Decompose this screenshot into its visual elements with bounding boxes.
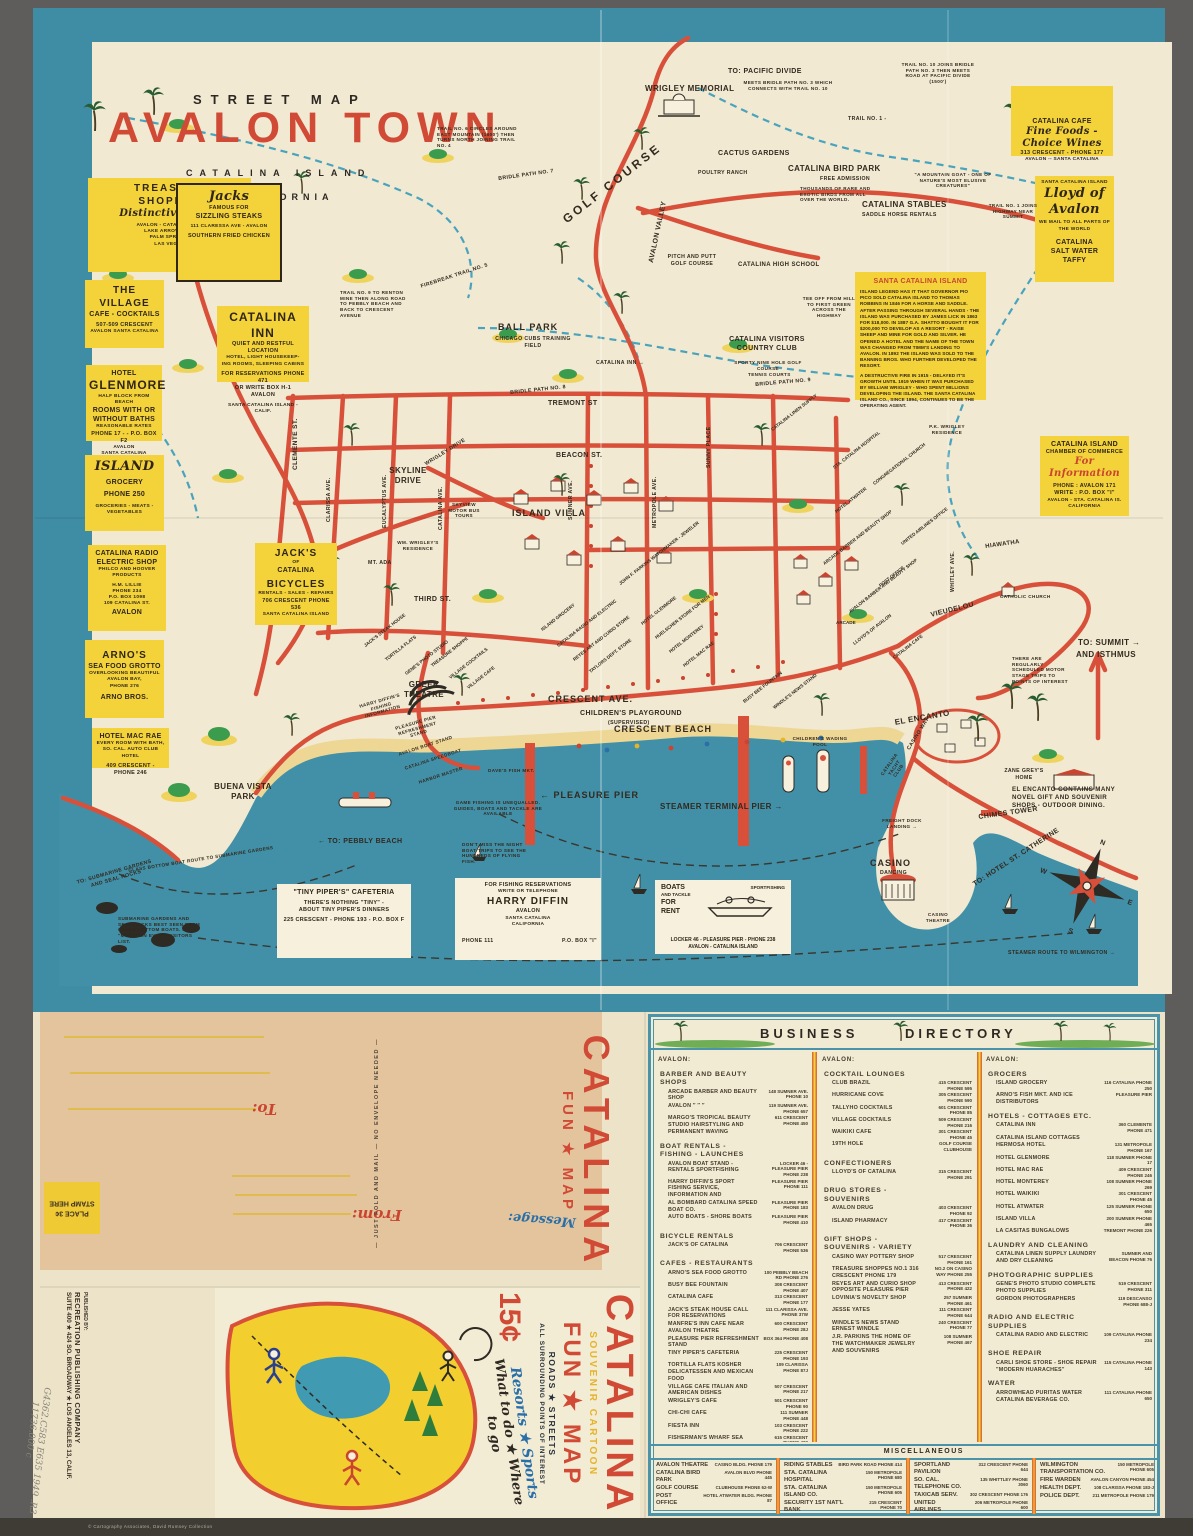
directory-row: LAUNDRY AND CLEANING: [988, 1242, 1152, 1250]
misc-entry-name: UNITED AIRLINES: [914, 1500, 964, 1514]
directory-entry-name: HOTEL WAIKIKI: [996, 1191, 1039, 1198]
misc-row: SECURITY 1ST NAT'L BANK 215 CRESCENT PHO…: [784, 1500, 902, 1514]
directory-entry-name: ISLAND VILLA: [996, 1216, 1036, 1223]
cover-price-row: 15¢ Resorts ★ Sports What to do ★ Where …: [486, 1292, 532, 1516]
directory-entry-name: JACK'S OF CATALINA: [668, 1242, 728, 1249]
ad-salt-water-taffy: SANTA CATALINA ISLANDLloyd of AvalonWE M…: [1035, 176, 1114, 282]
directory-entry-name: GROCERS: [988, 1071, 1027, 1079]
directory-entry-name: CHI-CHI CAFE: [668, 1410, 707, 1417]
directory-entry-name: JACK'S STEAK HOUSE CALL FOR RESERVATIONS: [668, 1307, 759, 1321]
directory-row: WAIKIKI CAFE 301 CRESCENT PHONE 45: [832, 1129, 972, 1140]
misc-entry-name: STA. CATALINA ISLAND CO.: [784, 1485, 848, 1499]
boats-title1b: AND TACKLE: [661, 892, 691, 898]
directory-entry-name: MARGO'S TROPICAL BEAUTY STUDIO HAIRSTYLI…: [668, 1115, 759, 1135]
directory-entry-name: ARNO'S FISH MKT. AND ICE DISTRIBUTORS: [996, 1092, 1098, 1106]
label-stage-trips-note: THERE ARE REGULARLY SCHEDULED MOTOR STAG…: [1012, 656, 1068, 685]
misc-row: HEALTH DEPT. 108 CLARISSA PHONE 183-J: [1040, 1485, 1154, 1492]
ad-hotel-glenmore: HOTELGLENMOREHALF BLOCK FROM BEACHROOMS …: [86, 365, 162, 441]
fold-crease: [644, 1012, 646, 1520]
ad-tiny-pipers: "TINY PIPER'S" CAFETERIATHERE'S NOTHING …: [277, 884, 411, 958]
fold-crease: [35, 517, 1163, 519]
directory-row: CARLI SHOE STORE - SHOE REPAIR "MODERN H…: [996, 1360, 1152, 1374]
misc-divider: [906, 1458, 910, 1514]
label-metropole-ave: METROPOLE AVE.: [652, 477, 659, 528]
directory-entry-address: 601 CRESCENT PHONE 85: [927, 1105, 972, 1116]
directory-entry-address: 111 CRESCENT PHONE 644: [927, 1307, 972, 1318]
directory-entry-name: VILLAGE CAFE ITALIAN AND AMERICAN DISHES: [668, 1384, 759, 1398]
fold-and-mail-note: — JUST FOLD AND MAIL — NO ENVELOPE NEEDE…: [374, 1038, 380, 1248]
directory-row: PLEASURE PIER REFRESHMENT STAND BOX 364 …: [668, 1336, 808, 1350]
directory-entry-address: 111 SUMNER PHONE 448: [763, 1410, 808, 1421]
misc-entry-address: 108 CLARISSA PHONE 183-J: [1094, 1485, 1154, 1492]
directory-row: JACK'S OF CATALINA 706 CRESCENT PHONE 53…: [668, 1242, 808, 1253]
ad-jacks-bicycles: JACK'SOFCATALINABICYCLESRENTALS - SALES …: [255, 543, 337, 625]
directory-row: GENE'S PHOTO STUDIO COMPLETE PHOTO SUPPL…: [996, 1281, 1152, 1295]
directory-row: TORTILLA FLATS KOSHER DELICATESSEN AND M…: [668, 1362, 808, 1382]
misc-entry-name: WILMINGTON TRANSPORTATION CO.: [1040, 1462, 1110, 1476]
directory-entry-name: TINY PIPER'S CAFETERIA: [668, 1350, 739, 1357]
label-pitch-putt: PITCH AND PUTT GOLF COURSE: [662, 254, 722, 267]
fold-crease: [600, 10, 602, 1010]
directory-row: PHOTOGRAPHIC SUPPLIES: [988, 1272, 1152, 1280]
directory-entry-address: TREMONT PHONE 226: [1102, 1228, 1152, 1234]
label-to-isthmus: AND ISTHMUS: [1076, 650, 1136, 660]
ad-catalina-radio: CATALINA RADIOELECTRIC SHOPPHILCO AND HO…: [88, 545, 166, 631]
directory-entry-name: HARRY DIFFIN'S SPORT FISHING SERVICE, IN…: [668, 1179, 759, 1199]
directory-row: AUTO BOATS - SHORE BOATS PLEASURE PIER P…: [668, 1214, 808, 1225]
rowboat-icon: [707, 894, 773, 918]
directory-entry-name: FISHERMAN'S WHARF SEA FOOD: [668, 1435, 759, 1442]
directory-entry-address: 119 DESCANSO PHONE 688-J: [1102, 1296, 1152, 1307]
label-pacific-divide: TO: PACIFIC DIVIDE: [728, 68, 802, 77]
misc-row: FIRE WARDEN AVALON CANYON PHONE 454: [1040, 1477, 1154, 1484]
directory-row: ARNO'S FISH MKT. AND ICE DISTRIBUTORS PL…: [996, 1092, 1152, 1106]
directory-entry-name: CATALINA LINEN SUPPLY LAUNDRY AND DRY CL…: [996, 1251, 1098, 1265]
label-night-boat-note: DON'T MISS THE NIGHT BOAT TRIPS TO SEE T…: [462, 842, 534, 865]
directory-row: CATALINA ISLAND COTTAGES: [996, 1135, 1152, 1142]
directory-entry-address: 519 CRESCENT PHONE 311: [1102, 1281, 1152, 1292]
cover-roads: ROADS ★ STREETS: [545, 1292, 558, 1516]
label-beacon-st: BEACON ST.: [556, 452, 602, 461]
address-line: [233, 1213, 351, 1215]
directory-entry-address: 501 CRESCENT PHONE 90: [763, 1398, 808, 1409]
directory-entry-name: AUTO BOATS - SHORE BOATS: [668, 1214, 752, 1221]
directory-entry-name: WAIKIKI CAFE: [832, 1129, 872, 1136]
boats-title2: FOR: [661, 899, 676, 907]
fold-crease: [40, 1286, 640, 1288]
directory-entry-address: 315 CRESCENT PHONE 291: [927, 1169, 972, 1180]
directory-entry-address: 360 CLEMENTE PHONE 471: [1102, 1122, 1152, 1133]
label-daves-fish-mkt: DAVE'S FISH MKT.: [488, 768, 535, 774]
directory-entry-address: 600 CRESCENT PHONE 28J: [763, 1321, 808, 1332]
label-wrigley-residence: WM. WRIGLEY'S RESIDENCE: [392, 540, 444, 551]
directory-row: COCKTAIL LOUNGES: [824, 1071, 972, 1079]
directory-row: HOTEL GLENMORE 118 SUMNER PHONE 17: [996, 1155, 1152, 1166]
label-trail9-note: TRAIL NO. 9 TO RENTON MINE THEN ALONG RO…: [340, 290, 410, 319]
directory-entry-name: SHOE REPAIR: [988, 1350, 1042, 1358]
directory-entry-address: 200 SUMNER PHONE 465: [1102, 1216, 1152, 1227]
directory-entry-name: MANFRE'S INN CAFE NEAR AVALON THEATRE: [668, 1321, 759, 1335]
label-casino-dancing: DANCING: [880, 870, 907, 877]
compass-n: N: [1099, 839, 1106, 847]
misc-entry-address: 150 METROPOLE PHONE 680: [849, 1470, 902, 1484]
directory-entry-name: VILLAGE COCKTAILS: [832, 1117, 891, 1124]
misc-entry-address: 312 CRESCENT PHONE 644: [975, 1462, 1028, 1476]
collection-credit: © Cartography Associates, David Rumsey C…: [88, 1524, 212, 1529]
directory-row: J.R. PARKINS THE HOME OF THE WATCHMAKER …: [832, 1334, 972, 1354]
label-tee-note: TEE OFF FROM HILL TO FIRST GREEN ACROSS …: [800, 296, 858, 319]
directory-entry-name: ARNO'S SEA FOOD GROTTO: [668, 1270, 747, 1277]
directory-entry-address: LOCKER 46 - PLEASURE PIER PHONE 238: [763, 1161, 808, 1178]
directory-divider: [812, 1052, 817, 1442]
directory-row: BARBER AND BEAUTY SHOPS: [660, 1071, 808, 1088]
directory-entry-name: DRUG STORES - SOUVENIRS: [824, 1187, 921, 1204]
directory-entry-name: LA CASITAS BUNGALOWS: [996, 1228, 1069, 1235]
boats-bottom2: AVALON - CATALINA ISLAND: [655, 944, 791, 950]
label-childrens-playground: CHILDREN'S PLAYGROUND: [580, 710, 682, 719]
directory-entry-name: TREASURE SHOPPES NO.1 316 CRESCENT PHONE…: [832, 1266, 923, 1280]
directory-row: CONFECTIONERS: [824, 1160, 972, 1168]
directory-column-1: AVALON: BARBER AND BEAUTY SHOPS ARCADE B…: [658, 1054, 808, 1442]
misc-entry-address: 302 CRESCENT PHONE 176: [970, 1492, 1028, 1499]
directory-entry-address: 413 CRESCENT PHONE 422: [927, 1281, 972, 1292]
directory-entry-name: TORTILLA FLATS KOSHER DELICATESSEN AND M…: [668, 1362, 759, 1382]
directory-row: BOAT RENTALS - FISHING - LAUNCHES: [660, 1143, 808, 1160]
directory-row: JACK'S STEAK HOUSE CALL FOR RESERVATIONS…: [668, 1307, 808, 1321]
directory-row: GROCERS: [988, 1071, 1152, 1079]
label-bird-park-sub: FREE ADMISSION: [820, 176, 870, 183]
directory-entry-address: 109 CATALINA PHONE 234: [1102, 1332, 1152, 1343]
directory-entry-address: 100 PEBBLY BEACH RD PHONE 276: [763, 1270, 808, 1281]
directory-row: VILLAGE COCKTAILS 509 CRESCENT PHONE 216: [832, 1117, 972, 1128]
misc-entry-address: 211 METROPOLE PHONE 179: [1093, 1493, 1155, 1500]
diffin-pobox: P.O. BOX "I": [562, 938, 597, 945]
postcard-to-label: To:: [252, 1100, 277, 1118]
directory-entry-address: 313 CRESCENT PHONE 177: [763, 1294, 808, 1305]
label-tremont-st: TREMONT ST: [548, 400, 598, 409]
misc-row: POST OFFICE HOTEL ATWATER BLDG. PHONE 87: [656, 1493, 772, 1507]
label-to-summit: TO: SUMMIT →: [1078, 638, 1140, 648]
misc-entry-name: SECURITY 1ST NAT'L BANK: [784, 1500, 851, 1514]
directory-entry-name: ARCADE BARBER AND BEAUTY SHOP: [668, 1089, 759, 1103]
back-title-funmap: FUN ★ MAP: [556, 1026, 579, 1278]
misc-entry-address: AVALON CANYON PHONE 454: [1090, 1477, 1154, 1484]
directory-row: WINDLE'S NEWS STAND ERNEST WINDLE 240 CR…: [832, 1320, 972, 1334]
directory-entry-name: AVALON:: [822, 1056, 855, 1064]
misc-row: SPORTLAND PAVILION 312 CRESCENT PHONE 64…: [914, 1462, 1028, 1476]
directory-entry-name: HOTEL ATWATER: [996, 1204, 1044, 1211]
directory-row: CLUB BRAZIL 415 CRESCENT PHONE 595: [832, 1080, 972, 1091]
directory-entry-address: 103 CRESCENT PHONE 222: [763, 1423, 808, 1434]
biz-label: ARCADE: [836, 620, 856, 625]
misc-entry-address: 206 METROPOLE PHONE 600: [967, 1500, 1028, 1514]
label-wading-pool: CHILDREN'S WADING POOL: [792, 736, 848, 747]
label-skyview-tours: SKYVIEW MOTOR BUS TOURS: [442, 502, 486, 519]
directory-entry-name: REYES ART AND CURIO SHOP OPPOSITE PLEASU…: [832, 1281, 923, 1295]
misc-column-4: WILMINGTON TRANSPORTATION CO. 150 METROP…: [1040, 1462, 1154, 1514]
label-pacific-divide-note: MEETS BRIDLE PATH NO. 3 WHICH CONNECTS W…: [742, 80, 834, 91]
label-crescent-ave: CRESCENT AVE.: [548, 694, 633, 705]
directory-row: HARRY DIFFIN'S SPORT FISHING SERVICE, IN…: [668, 1179, 808, 1199]
directory-entry-address: PLEASURE PIER PHONE 410: [763, 1214, 808, 1225]
directory-row: CHI-CHI CAFE 111 SUMNER PHONE 448: [668, 1410, 808, 1421]
misc-entry-name: TAXICAB SERV.: [914, 1492, 958, 1499]
misc-column-3: SPORTLAND PAVILION 312 CRESCENT PHONE 64…: [914, 1462, 1028, 1514]
publisher-name: RECREATION PUBLISHING COMPANY: [72, 1292, 82, 1520]
directory-row: CATALINA INN 360 CLEMENTE PHONE 471: [996, 1122, 1152, 1133]
directory-entry-address: 119 SUMNER AVE. PHONE 657: [763, 1103, 808, 1114]
directory-entry-address: PLEASURE PIER: [1102, 1092, 1152, 1098]
directory-entry-address: 115 CATALINA PHONE 143: [1102, 1360, 1152, 1371]
cover-funmap: FUN ★ MAP: [558, 1292, 584, 1516]
directory-row: LOVINIA'S NOVELTY SHOP 257 SUMNER PHONE …: [832, 1295, 972, 1306]
directory-entry-name: CATALINA RADIO AND ELECTRIC: [996, 1332, 1088, 1339]
misc-entry-name: CATALINA BIRD PARK: [656, 1470, 715, 1484]
misc-row: TAXICAB SERV. 302 CRESCENT PHONE 176: [914, 1492, 1028, 1499]
directory-entry-address: 108 SUMNER PHONE 467: [927, 1334, 972, 1345]
directory-header-rule: [651, 1048, 1157, 1050]
directory-row: CAFES - RESTAURANTS: [660, 1260, 808, 1268]
label-pk-wrigley-residence: P.K. WRIGLEY RESIDENCE: [922, 424, 972, 435]
directory-entry-address: 308 CRESCENT PHONE 407: [763, 1282, 808, 1293]
directory-entry-address: 403 CRESCENT PHONE 92: [927, 1205, 972, 1216]
directory-entry-name: AVALON DRUG: [832, 1205, 874, 1212]
directory-entry-name: GORDON PHOTOGRAPHERS: [996, 1296, 1075, 1303]
directory-row: HOTEL WAIKIKI 301 CRESCENT PHONE 45: [996, 1191, 1152, 1202]
directory-row: HOTEL MONTEREY 108 SUMNER PHONE 269: [996, 1179, 1152, 1190]
directory-entry-name: CARLI SHOE STORE - SHOE REPAIR "MODERN H…: [996, 1360, 1098, 1374]
label-bird-park: CATALINA BIRD PARK: [788, 164, 881, 174]
misc-entry-address: 150 METROPOLE PHONE 605: [1113, 1462, 1154, 1476]
directory-entry-name: HURRICANE COVE: [832, 1092, 884, 1099]
directory-entry-name: J.R. PARKINS THE HOME OF THE WATCHMAKER …: [832, 1334, 923, 1354]
address-line: [232, 1175, 350, 1177]
label-ball-park-sub: CHICAGO CUBS TRAINING FIELD: [495, 336, 571, 349]
misc-row: GOLF COURSE CLUBHOUSE PHONE 62-W: [656, 1485, 772, 1492]
directory-row: ISLAND PHARMACY 417 CRESCENT PHONE 36: [832, 1218, 972, 1229]
ad-harry-diffin: FOR FISHING RESERVATIONSWRITE OR TELEPHO…: [455, 878, 601, 960]
directory-row: HERMOSA HOTEL 131 METROPOLE PHONE 167: [996, 1142, 1152, 1153]
directory-row: GIFT SHOPS - SOUVENIRS - VARIETY: [824, 1236, 972, 1253]
directory-entry-name: HOTEL MONTEREY: [996, 1179, 1049, 1186]
misc-entry-name: SPORTLAND PAVILION: [914, 1462, 972, 1476]
directory-entry-address: 301 CRESCENT PHONE 45: [927, 1129, 972, 1140]
directory-entry-name: ISLAND PHARMACY: [832, 1218, 888, 1225]
directory-row: ARCADE BARBER AND BEAUTY SHOP 148 SUMNER…: [668, 1089, 808, 1103]
directory-entry-address: 148 SUMNER AVE. PHONE 10: [763, 1089, 808, 1100]
label-country-club-sub2: TENNIS COURTS: [748, 372, 791, 378]
label-freight-dock: FREIGHT DOCK LANDING →: [882, 818, 922, 829]
directory-row: SHOE REPAIR: [988, 1350, 1152, 1358]
directory-row: CATALINA RADIO AND ELECTRIC 109 CATALINA…: [996, 1332, 1152, 1343]
directory-entry-address: 301 CRESCENT PHONE 45: [1102, 1191, 1152, 1202]
label-high-school: CATALINA HIGH SCHOOL: [738, 262, 820, 270]
directory-row: VILLAGE CAFE ITALIAN AND AMERICAN DISHES…: [668, 1384, 808, 1398]
misc-entry-name: AVALON THEATRE: [656, 1462, 708, 1469]
directory-entry-name: AVALON:: [658, 1056, 691, 1064]
label-casino-theatre: CASINO THEATRE: [920, 912, 956, 923]
directory-row: DRUG STORES - SOUVENIRS: [824, 1187, 972, 1204]
directory-header-illustration: [655, 1018, 1155, 1048]
misc-row: STA. CATALINA ISLAND CO. 150 METROPOLE P…: [784, 1485, 902, 1499]
cover-illustration: [222, 1296, 512, 1512]
directory-entry-name: WATER: [988, 1380, 1016, 1388]
wrigley-memorial-building: [658, 94, 700, 116]
misc-entry-address: BIRD PARK ROAD PHONE 414: [838, 1462, 902, 1469]
directory-row: ARROWHEAD PURITAS WATER CATALINA BEVERAG…: [996, 1390, 1152, 1404]
directory-row: TREASURE SHOPPES NO.1 316 CRESCENT PHONE…: [832, 1266, 972, 1280]
directory-row: AVALON:: [822, 1056, 972, 1064]
directory-row: HOTEL MAC RAE 409 CRESCENT PHONE 246: [996, 1167, 1152, 1178]
label-trail6-note: TRAIL NO. 6 CIRCLES AROUND EAST MOUNTAIN…: [437, 126, 517, 149]
directory-row: TINY PIPER'S CAFETERIA 225 CRESCENT PHON…: [668, 1350, 808, 1361]
directory-row: ISLAND GROCERY 116 CATALINA PHONE 250: [996, 1080, 1152, 1091]
misc-row: STA. CATALINA HOSPITAL 150 METROPOLE PHO…: [784, 1470, 902, 1484]
directory-entry-name: RADIO AND ELECTRIC SUPPLIES: [988, 1314, 1096, 1331]
directory-entry-address: PLEASURE PIER PHONE 111: [763, 1179, 808, 1190]
directory-entry-name: 19TH HOLE: [832, 1141, 863, 1148]
label-clemente-st: CLEMENTE ST.: [292, 418, 300, 470]
directory-entry-name: HOTEL MAC RAE: [996, 1167, 1043, 1174]
label-cactus-gardens: CACTUS GARDENS: [718, 150, 790, 159]
directory-row: AVALON:: [986, 1056, 1152, 1064]
collection-footer: © Cartography Associates, David Rumsey C…: [0, 1518, 1193, 1536]
directory-entry-name: FIESTA INN: [668, 1423, 699, 1430]
directory-entry-name: CATALINA CAFE: [668, 1294, 713, 1301]
misc-entry-name: FIRE WARDEN: [1040, 1477, 1081, 1484]
directory-row: 19TH HOLE GOLF COURSE CLUBHOUSE: [832, 1141, 972, 1152]
directory-column-3: AVALON: GROCERS ISLAND GROCERY 116 CATAL…: [986, 1054, 1152, 1442]
ad-catalina-inn: CATALINA INNQUIET AND RESTFUL LOCATIONHO…: [217, 306, 309, 382]
misc-row: AVALON THEATRE CASINO BLDG. PHONE 179: [656, 1462, 772, 1469]
misc-entry-address: AVALON BLVD PHONE 445: [718, 1470, 772, 1484]
label-goat-note: "A MOUNTAIN GOAT - ONE OF NATURE'S MOST …: [905, 172, 1001, 189]
boats-bottom1: LOCKER 46 - PLEASURE PIER - PHONE 238: [655, 937, 791, 943]
ad-chamber-of-commerce: CATALINA ISLANDCHAMBER OF COMMERCEFor In…: [1040, 436, 1129, 516]
label-sunny-place: SUNNY PLACE: [706, 427, 713, 469]
directory-entry-name: GIFT SHOPS - SOUVENIRS - VARIETY: [824, 1236, 921, 1253]
label-island-villa: ISLAND VILLA: [512, 508, 586, 519]
directory-row: BICYCLE RENTALS: [660, 1233, 808, 1241]
miscellaneous-bar: MISCELLANEOUS: [651, 1444, 1157, 1460]
misc-entry-address: CLUBHOUSE PHONE 62-W: [716, 1485, 772, 1492]
directory-entry-address: PLEASURE PIER PHONE 183: [763, 1200, 808, 1211]
label-trail-no1: TRAIL NO. 1 -: [848, 116, 887, 123]
label-catholic-church: CATHOLIC CHURCH: [1000, 594, 1051, 600]
directory-row: REYES ART AND CURIO SHOP OPPOSITE PLEASU…: [832, 1281, 972, 1295]
directory-entry-name: CONFECTIONERS: [824, 1160, 892, 1168]
label-country-club-sub: SPORTY NINE HOLE GOLF COURSE: [728, 360, 808, 371]
directory-entry-address: 225 CRESCENT PHONE 193: [763, 1350, 808, 1361]
misc-column-1: AVALON THEATRE CASINO BLDG. PHONE 179 CA…: [656, 1462, 772, 1514]
directory-row: GORDON PHOTOGRAPHERS 119 DESCANSO PHONE …: [996, 1296, 1152, 1307]
misc-entry-address: 150 METROPOLE PHONE 605: [851, 1485, 902, 1499]
misc-entry-name: STA. CATALINA HOSPITAL: [784, 1470, 846, 1484]
cover-title: CATALINA: [600, 1292, 638, 1516]
directory-entry-name: HERMOSA HOTEL: [996, 1142, 1046, 1149]
directory-entry-address: 507 CRESCENT PHONE 217: [763, 1384, 808, 1395]
directory-row: WRIGLEY'S CAFE 501 CRESCENT PHONE 90: [668, 1398, 808, 1409]
directory-entry-address: 415 CRESCENT PHONE 595: [927, 1080, 972, 1091]
label-third-st: THIRD ST.: [414, 596, 451, 605]
directory-entry-address: 509 CRESCENT PHONE 216: [927, 1117, 972, 1128]
directory-entry-name: WRIGLEY'S CAFE: [668, 1398, 717, 1405]
directory-entry-name: ISLAND GROCERY: [996, 1080, 1047, 1087]
publisher-address: SUITE 400 ★ 424 SO. BROADWAY ★ LOS ANGEL…: [63, 1292, 72, 1520]
directory-row: AVALON:: [658, 1056, 808, 1064]
casino-building: [880, 874, 916, 900]
misc-column-2: RIDING STABLES BIRD PARK ROAD PHONE 414 …: [784, 1462, 902, 1514]
label-pleasure-pier: ← PLEASURE PIER: [540, 790, 639, 801]
misc-entry-address: 215 CRESCENT PHONE 70: [854, 1500, 902, 1514]
scanned-map-sheet: N E S W STREET MAP AVALON TOWN CATALINA …: [0, 0, 1193, 1536]
ad-island-grocery: ISLANDGROCERYPHONE 250GROCERIES - MEATS …: [85, 455, 164, 531]
directory-row: MANFRE'S INN CAFE NEAR AVALON THEATRE 60…: [668, 1321, 808, 1335]
directory-entry-name: GENE'S PHOTO STUDIO COMPLETE PHOTO SUPPL…: [996, 1281, 1098, 1295]
misc-row: WILMINGTON TRANSPORTATION CO. 150 METROP…: [1040, 1462, 1154, 1476]
directory-entry-name: AL BOMBARD CATALINA SPEED BOAT CO.: [668, 1200, 759, 1214]
directory-entry-name: WINDLE'S NEWS STAND ERNEST WINDLE: [832, 1320, 923, 1334]
misc-entry-name: GOLF COURSE: [656, 1485, 699, 1492]
misc-row: RIDING STABLES BIRD PARK ROAD PHONE 414: [784, 1462, 902, 1469]
misc-divider: [776, 1458, 780, 1514]
label-mt-ada: MT. ADA: [368, 560, 392, 567]
directory-entry-name: BUSY BEE FOUNTAIN: [668, 1282, 728, 1289]
label-trail10-note: TRAIL NO. 10 JOINS BRIDLE PATH NO. 3 THE…: [900, 62, 976, 85]
directory-entry-name: PHOTOGRAPHIC SUPPLIES: [988, 1272, 1094, 1280]
directory-entry-address: 517 CRESCENT PHONE 161: [927, 1254, 972, 1265]
directory-row: AVALON DRUG 403 CRESCENT PHONE 92: [832, 1205, 972, 1216]
directory-entry-address: 409 CRESCENT PHONE 246: [1102, 1167, 1152, 1178]
back-title-catalina: CATALINA: [578, 1026, 614, 1278]
label-catalina-stables: CATALINA STABLES: [862, 200, 947, 210]
directory-row: HURRICANE COVE 305 CRESCENT PHONE 590: [832, 1092, 972, 1103]
directory-entry-name: AVALON:: [986, 1056, 1019, 1064]
directory-entry-address: 305 CRESCENT PHONE 590: [927, 1092, 972, 1103]
boats-sportfishing: SPORTFISHING: [751, 885, 785, 891]
label-casino: CASINO: [870, 858, 911, 869]
directory-entry-address: 111 CLARISSA AVE. PHONE 37W: [763, 1307, 808, 1318]
directory-entry-name: CASINO WAY POTTERY SHOP: [832, 1254, 914, 1261]
label-crescent-beach: CRESCENT BEACH: [614, 724, 712, 735]
directory-entry-name: BARBER AND BEAUTY SHOPS: [660, 1071, 757, 1088]
directory-row: AL BOMBARD CATALINA SPEED BOAT CO. PLEAS…: [668, 1200, 808, 1214]
directory-entry-address: 706 CRESCENT PHONE 536: [763, 1242, 808, 1253]
directory-row: CATALINA LINEN SUPPLY LAUNDRY AND DRY CL…: [996, 1251, 1152, 1265]
directory-row: JESSE YATES 111 CRESCENT PHONE 644: [832, 1307, 972, 1318]
misc-entry-name: POST OFFICE: [656, 1493, 695, 1507]
misc-entry-address: 135 WHITTLEY PHONE 3060: [979, 1477, 1028, 1491]
directory-entry-name: BOAT RENTALS - FISHING - LAUNCHES: [660, 1143, 757, 1160]
label-poultry-ranch: POULTRY RANCH: [698, 170, 748, 177]
directory-entry-address: 417 CRESCENT PHONE 36: [927, 1218, 972, 1229]
misc-entry-name: RIDING STABLES: [784, 1462, 833, 1469]
label-catalina-inn-pointer: CATALINA INN →: [596, 360, 644, 367]
ad-jacks-steaks: JacksFAMOUS FORSIZZLING STEAKS111 CLARES…: [176, 183, 282, 282]
directory-entry-name: AVALON BOAT STAND - RENTALS SPORTFISHING: [668, 1161, 759, 1175]
postcard-panel: [40, 1012, 602, 1270]
directory-entry-address: GOLF COURSE CLUBHOUSE: [927, 1141, 972, 1152]
directory-divider: [977, 1052, 982, 1442]
label-zane-grey: ZANE GREY'S HOME: [1000, 768, 1048, 781]
directory-entry-name: CAFES - RESTAURANTS: [660, 1260, 753, 1268]
directory-entry-name: LOVINIA'S NOVELTY SHOP: [832, 1295, 906, 1302]
ad-village-cafe: THE VILLAGECAFE - COCKTAILS507-509 CRESC…: [85, 280, 164, 348]
misc-row: POLICE DEPT. 211 METROPOLE PHONE 179: [1040, 1493, 1154, 1500]
directory-row: AVALON ″ ″ ″ 119 SUMNER AVE. PHONE 657: [668, 1103, 808, 1114]
directory-entry-address: 131 METROPOLE PHONE 167: [1102, 1142, 1152, 1153]
misc-row: CATALINA BIRD PARK AVALON BLVD PHONE 445: [656, 1470, 772, 1484]
